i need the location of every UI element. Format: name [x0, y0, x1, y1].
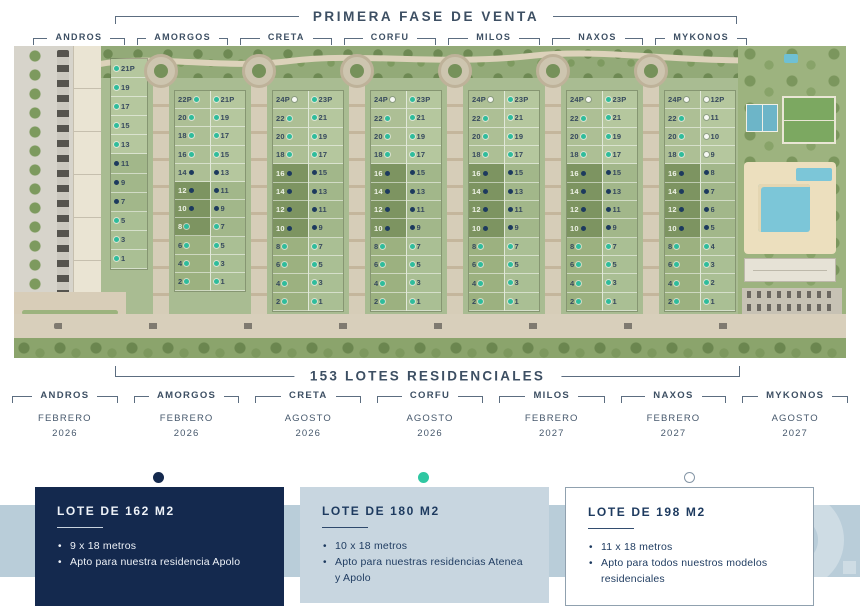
lot-strip-3-24P[interactable]: 24P: [273, 91, 308, 109]
lot-strip-7-11[interactable]: 11: [701, 109, 736, 127]
lot-strip-6-11[interactable]: 11: [603, 201, 638, 219]
lot-type-dot-icon: [214, 224, 219, 229]
lot-strip-4-8[interactable]: 8: [371, 238, 406, 256]
lot-number: 1: [121, 254, 125, 263]
lot-card-198: LOTE DE 198 M2 11 x 18 metros Apto para …: [565, 487, 814, 606]
lot-type-dot-icon: [214, 261, 219, 266]
lot-strip-7-22[interactable]: 22: [665, 109, 700, 127]
lot-number: 22: [374, 114, 383, 123]
lot-number: 1: [221, 277, 225, 286]
lot-strip-7-4[interactable]: 4: [665, 274, 700, 292]
lot-strip-6-20[interactable]: 20: [567, 128, 602, 146]
lot-strip-3-12[interactable]: 12: [273, 201, 308, 219]
lot-strip-4-12[interactable]: 12: [371, 201, 406, 219]
lot-strip-5-13[interactable]: 13: [505, 183, 540, 201]
lot-strip-7-20[interactable]: 20: [665, 128, 700, 146]
lot-number: 4: [374, 279, 378, 288]
lot-number: 22: [668, 114, 677, 123]
lot-strip-5-6[interactable]: 6: [469, 256, 504, 274]
lot-card-162: LOTE DE 162 M2 9 x 18 metros Apto para n…: [35, 487, 284, 606]
lot-number: 7: [121, 197, 125, 206]
lot-strip-6-7[interactable]: 7: [603, 238, 638, 256]
strip-6: 24P22201816141210864223P2119171513119753…: [566, 90, 638, 312]
lot-type-dot-icon: [282, 281, 287, 286]
strip-3: 24P22201816141210864223P2119171513119753…: [272, 90, 344, 312]
lot-strip-6-8[interactable]: 8: [567, 238, 602, 256]
lot-strip-5-19[interactable]: 19: [505, 128, 540, 146]
lot-strip-3-21[interactable]: 21: [309, 109, 344, 127]
clubhouse: [744, 258, 836, 282]
lot-strip-5-20[interactable]: 20: [469, 128, 504, 146]
lot-type-dot-icon: [312, 225, 317, 230]
lot-strip-5-5[interactable]: 5: [505, 256, 540, 274]
phase-bracket: CRETA: [255, 396, 361, 403]
lot-strip-3-16[interactable]: 16: [273, 164, 308, 182]
lot-column: 24P222018161412108642: [371, 91, 406, 311]
lot-strip-6-2[interactable]: 2: [567, 293, 602, 311]
lot-number: 4: [668, 279, 672, 288]
lot-number: 21: [515, 113, 524, 122]
lot-strip-4-22[interactable]: 22: [371, 109, 406, 127]
lot-strip-1-3[interactable]: 3: [111, 231, 147, 250]
lot-number: 22: [570, 114, 579, 123]
lot-type-dot-icon: [679, 171, 684, 176]
lot-strip-2-7[interactable]: 7: [211, 218, 246, 236]
lot-strip-6-16[interactable]: 16: [567, 164, 602, 182]
lot-strip-7-10[interactable]: 10: [701, 128, 736, 146]
street: [246, 46, 272, 358]
lot-strip-7-5[interactable]: 5: [701, 219, 736, 237]
lot-strip-2-11[interactable]: 11: [211, 182, 246, 200]
lot-strip-5-8[interactable]: 8: [469, 238, 504, 256]
lot-strip-1-17[interactable]: 17: [111, 97, 147, 116]
lot-strip-4-3[interactable]: 3: [407, 274, 442, 292]
phase-year: 2026: [255, 427, 361, 442]
lot-strip-5-24P[interactable]: 24P: [469, 91, 504, 109]
lot-number: 19: [613, 132, 622, 141]
lot-strip-6-4[interactable]: 4: [567, 274, 602, 292]
strip-7: 24P22201816141210864212P1110987654321: [664, 90, 736, 312]
lot-strip-4-14[interactable]: 14: [371, 183, 406, 201]
lot-type-dot-icon: [114, 66, 119, 71]
lot-strip-6-19[interactable]: 19: [603, 128, 638, 146]
lot-type-dot-icon: [214, 115, 219, 120]
lot-type-dot-icon: [287, 207, 292, 212]
lot-strip-2-3[interactable]: 3: [211, 255, 246, 273]
block-bracket-andros: ANDROS: [33, 38, 125, 45]
lot-type-dot-icon: [674, 244, 679, 249]
phase-name: MILOS: [525, 390, 578, 401]
lot-strip-6-1[interactable]: 1: [603, 293, 638, 311]
lot-type-dot-icon: [282, 244, 287, 249]
lot-card-title: LOTE DE 198 M2: [588, 505, 793, 519]
lot-strip-4-10[interactable]: 10: [371, 219, 406, 237]
lot-type-dot-icon: [581, 226, 586, 231]
lot-strip-2-22P[interactable]: 22P: [175, 91, 210, 109]
lot-strip-6-13[interactable]: 13: [603, 183, 638, 201]
lot-number: 21P: [121, 64, 135, 73]
lot-number: 1: [515, 297, 519, 306]
lot-type-dot-icon: [576, 262, 581, 267]
lot-strip-2-21P[interactable]: 21P: [211, 91, 246, 109]
lot-number: 14: [668, 187, 677, 196]
lot-number: 11: [711, 113, 719, 122]
masterplan-page: PRIMERA FASE DE VENTA ANDROS AMORGOS CRE…: [0, 0, 860, 615]
lot-strip-3-7[interactable]: 7: [309, 238, 344, 256]
lot-number: 1: [319, 297, 323, 306]
lot-strip-2-14[interactable]: 14: [175, 164, 210, 182]
lot-strip-4-17[interactable]: 17: [407, 146, 442, 164]
lot-strip-5-2[interactable]: 2: [469, 293, 504, 311]
lot-strip-7-14[interactable]: 14: [665, 183, 700, 201]
lot-strip-5-16[interactable]: 16: [469, 164, 504, 182]
lot-number: 11: [613, 205, 621, 214]
lot-card-bullets: 11 x 18 metros Apto para todos nuestros …: [588, 540, 793, 587]
lot-type-dot-icon: [214, 133, 219, 138]
lot-strip-7-12[interactable]: 12: [665, 201, 700, 219]
lot-number: 17: [319, 150, 328, 159]
lot-strip-4-5[interactable]: 5: [407, 256, 442, 274]
lot-strip-4-4[interactable]: 4: [371, 274, 406, 292]
lot-strip-7-2[interactable]: 2: [665, 293, 700, 311]
lot-strip-6-9[interactable]: 9: [603, 219, 638, 237]
lot-number: 20: [472, 132, 481, 141]
block-label: MYKONOS: [665, 32, 737, 42]
lot-type-dot-icon: [606, 115, 611, 120]
lot-number: 10: [570, 224, 579, 233]
lot-type-dot-icon: [114, 180, 119, 185]
lot-strip-1-15[interactable]: 15: [111, 116, 147, 135]
lot-type-dot-icon: [704, 134, 709, 139]
strip-2: 22P201816141210864221P191715131197531: [174, 90, 246, 292]
lot-strip-3-1[interactable]: 1: [309, 293, 344, 311]
lot-strip-3-13[interactable]: 13: [309, 183, 344, 201]
lot-strip-4-15[interactable]: 15: [407, 164, 442, 182]
lot-number: 21P: [221, 95, 235, 104]
lot-strip-3-17[interactable]: 17: [309, 146, 344, 164]
lot-strip-1-13[interactable]: 13: [111, 135, 147, 154]
lot-type-dot-icon: [287, 134, 292, 139]
lot-strip-3-6[interactable]: 6: [273, 256, 308, 274]
phase-name: MYKONOS: [758, 390, 832, 401]
lot-column: 24P222018161412108642: [665, 91, 700, 311]
lot-number: 6: [374, 260, 378, 269]
lot-strip-1-1[interactable]: 1: [111, 250, 147, 269]
lot-number: 8: [570, 242, 574, 251]
lot-strip-2-13[interactable]: 13: [211, 164, 246, 182]
lot-strip-4-19[interactable]: 19: [407, 128, 442, 146]
lot-strip-2-4[interactable]: 4: [175, 255, 210, 273]
lot-number: 13: [515, 187, 524, 196]
phase-month: AGOSTO: [255, 412, 361, 427]
lot-strip-6-17[interactable]: 17: [603, 146, 638, 164]
lot-strip-7-18[interactable]: 18: [665, 146, 700, 164]
lot-strip-6-23P[interactable]: 23P: [603, 91, 638, 109]
lot-strip-2-18[interactable]: 18: [175, 127, 210, 145]
lot-strip-2-19[interactable]: 19: [211, 109, 246, 127]
lot-type-dot-icon: [312, 189, 317, 194]
lot-type-dot-icon: [581, 152, 586, 157]
lot-strip-7-16[interactable]: 16: [665, 164, 700, 182]
lot-strip-2-1[interactable]: 1: [211, 273, 246, 291]
lot-number: 24P: [472, 95, 486, 104]
lot-number: 20: [570, 132, 579, 141]
lot-strip-3-11[interactable]: 11: [309, 201, 344, 219]
lot-strip-4-16[interactable]: 16: [371, 164, 406, 182]
lot-strip-1-9[interactable]: 9: [111, 174, 147, 193]
lot-type-dot-icon: [114, 123, 119, 128]
lot-strip-4-1[interactable]: 1: [407, 293, 442, 311]
lot-type-dot-icon: [189, 188, 194, 193]
lot-strip-3-10[interactable]: 10: [273, 219, 308, 237]
lot-strip-3-8[interactable]: 8: [273, 238, 308, 256]
lot-strip-3-18[interactable]: 18: [273, 146, 308, 164]
lot-strip-4-9[interactable]: 9: [407, 219, 442, 237]
lot-number: 12P: [711, 95, 725, 104]
lot-type-dot-icon: [508, 280, 513, 285]
roundabout-icon: [144, 54, 178, 88]
lot-type-dot-icon: [508, 225, 513, 230]
lot-strip-2-16[interactable]: 16: [175, 146, 210, 164]
lot-number: 12: [668, 205, 677, 214]
lot-strip-3-22[interactable]: 22: [273, 109, 308, 127]
lot-strip-5-11[interactable]: 11: [505, 201, 540, 219]
lot-type-dot-icon: [704, 152, 709, 157]
lot-number: 22: [472, 114, 481, 123]
lot-strip-5-23P[interactable]: 23P: [505, 91, 540, 109]
lot-strip-6-22[interactable]: 22: [567, 109, 602, 127]
lot-type-dot-icon: [679, 189, 684, 194]
lot-strip-5-18[interactable]: 18: [469, 146, 504, 164]
lot-strip-4-6[interactable]: 6: [371, 256, 406, 274]
lot-strip-7-6[interactable]: 6: [701, 201, 736, 219]
lot-strip-6-5[interactable]: 5: [603, 256, 638, 274]
lot-strip-5-12[interactable]: 12: [469, 201, 504, 219]
lot-strip-6-15[interactable]: 15: [603, 164, 638, 182]
lot-type-dot-icon: [508, 244, 513, 249]
lot-strip-7-8[interactable]: 8: [665, 238, 700, 256]
lot-strip-2-8[interactable]: 8: [175, 218, 210, 236]
lot-strip-7-3[interactable]: 3: [701, 256, 736, 274]
lot-type-dot-icon: [189, 115, 194, 120]
lot-strip-3-4[interactable]: 4: [273, 274, 308, 292]
lot-strip-5-7[interactable]: 7: [505, 238, 540, 256]
phase-amorgos: AMORGOS FEBRERO2026: [134, 396, 240, 441]
lot-column: 24P222018161412108642: [469, 91, 504, 311]
lot-strip-5-14[interactable]: 14: [469, 183, 504, 201]
lot-strip-2-20[interactable]: 20: [175, 109, 210, 127]
lot-strip-2-12[interactable]: 12: [175, 182, 210, 200]
lot-type-dot-icon: [214, 279, 219, 284]
lot-number: 6: [711, 205, 715, 214]
lot-number: 8: [668, 242, 672, 251]
lot-type-dot-icon: [581, 207, 586, 212]
lot-strip-3-14[interactable]: 14: [273, 183, 308, 201]
lot-strip-1-11[interactable]: 11: [111, 154, 147, 173]
street: [540, 46, 566, 358]
lot-type-dot-icon: [606, 152, 611, 157]
lot-type-180-dot-icon: [418, 472, 429, 483]
lot-type-dot-icon: [606, 97, 611, 102]
lot-strip-1-7[interactable]: 7: [111, 193, 147, 212]
lot-strip-3-20[interactable]: 20: [273, 128, 308, 146]
lot-type-dot-icon: [606, 134, 611, 139]
lot-number: 3: [711, 260, 715, 269]
lot-strip-1-21P[interactable]: 21P: [111, 59, 147, 78]
lot-type-dot-icon: [114, 85, 119, 90]
lot-strip-5-15[interactable]: 15: [505, 164, 540, 182]
lot-strip-4-23P[interactable]: 23P: [407, 91, 442, 109]
lot-strip-2-5[interactable]: 5: [211, 237, 246, 255]
lot-number: 10: [668, 224, 677, 233]
lot-type-dot-icon: [385, 226, 390, 231]
lot-strip-7-10[interactable]: 10: [665, 219, 700, 237]
lot-strip-6-10[interactable]: 10: [567, 219, 602, 237]
lot-number: 7: [613, 242, 617, 251]
lot-strip-4-24P[interactable]: 24P: [371, 91, 406, 109]
lot-strip-6-12[interactable]: 12: [567, 201, 602, 219]
lot-column: 12P1110987654321: [700, 91, 736, 311]
lot-strip-7-1[interactable]: 1: [701, 293, 736, 311]
lot-number: 18: [374, 150, 383, 159]
lot-strip-4-13[interactable]: 13: [407, 183, 442, 201]
lot-strip-5-3[interactable]: 3: [505, 274, 540, 292]
lot-strip-4-2[interactable]: 2: [371, 293, 406, 311]
lot-strip-7-8[interactable]: 8: [701, 164, 736, 182]
main-road: [14, 314, 846, 338]
roundabout-icon: [536, 54, 570, 88]
lot-strip-4-11[interactable]: 11: [407, 201, 442, 219]
lot-strip-5-10[interactable]: 10: [469, 219, 504, 237]
lot-number: 14: [472, 187, 481, 196]
lot-type-dot-icon: [606, 299, 611, 304]
lot-type-dot-icon: [114, 142, 119, 147]
lot-number: 4: [472, 279, 476, 288]
lot-strip-5-22[interactable]: 22: [469, 109, 504, 127]
lot-column: 23P21191715131197531: [602, 91, 638, 311]
phase-naxos: NAXOS FEBRERO2027: [621, 396, 727, 441]
lot-type-dot-icon: [581, 116, 586, 121]
lot-number: 11: [221, 186, 229, 195]
lot-number: 16: [276, 169, 285, 178]
lot-number: 23P: [319, 95, 333, 104]
lot-strip-4-20[interactable]: 20: [371, 128, 406, 146]
lot-type-dot-icon: [704, 115, 709, 120]
lot-number: 1: [417, 297, 421, 306]
lot-strip-6-6[interactable]: 6: [567, 256, 602, 274]
roundabout-icon: [438, 54, 472, 88]
lot-strip-7-6[interactable]: 6: [665, 256, 700, 274]
lot-strip-7-2[interactable]: 2: [701, 274, 736, 292]
lot-type-dot-icon: [385, 189, 390, 194]
phase-year: 2026: [12, 427, 118, 442]
lot-type-dot-icon: [410, 207, 415, 212]
lot-type-dot-icon: [410, 244, 415, 249]
lot-strip-7-4[interactable]: 4: [701, 238, 736, 256]
lot-strip-6-3[interactable]: 3: [603, 274, 638, 292]
lot-number: 6: [472, 260, 476, 269]
lot-strip-2-15[interactable]: 15: [211, 146, 246, 164]
lot-strip-5-1[interactable]: 1: [505, 293, 540, 311]
lot-strip-2-2[interactable]: 2: [175, 273, 210, 291]
lot-strip-2-9[interactable]: 9: [211, 200, 246, 218]
parking-area: [742, 288, 842, 314]
lot-strip-3-3[interactable]: 3: [309, 274, 344, 292]
lot-strip-6-18[interactable]: 18: [567, 146, 602, 164]
lot-strip-4-7[interactable]: 7: [407, 238, 442, 256]
lot-strip-5-21[interactable]: 21: [505, 109, 540, 127]
lot-number: 13: [319, 187, 328, 196]
lot-strip-7-24P[interactable]: 24P: [665, 91, 700, 109]
lot-strip-2-17[interactable]: 17: [211, 127, 246, 145]
lot-strip-3-2[interactable]: 2: [273, 293, 308, 311]
lot-number: 12: [570, 205, 579, 214]
tennis-courts: [782, 96, 836, 144]
lot-number: 11: [319, 205, 327, 214]
lot-strip-7-12P[interactable]: 12P: [701, 91, 736, 109]
lot-type-dot-icon: [287, 171, 292, 176]
lot-type-dot-icon: [488, 97, 493, 102]
lot-strip-2-6[interactable]: 6: [175, 236, 210, 254]
lot-type-dot-icon: [684, 97, 689, 102]
lot-type-dot-icon: [674, 299, 679, 304]
lot-strip-3-9[interactable]: 9: [309, 219, 344, 237]
phase-year: 2027: [621, 427, 727, 442]
lot-number: 11: [515, 205, 523, 214]
lot-strip-5-4[interactable]: 4: [469, 274, 504, 292]
lot-number: 7: [221, 222, 225, 231]
lot-strip-4-21[interactable]: 21: [407, 109, 442, 127]
lot-strip-1-19[interactable]: 19: [111, 78, 147, 97]
lot-number: 4: [570, 279, 574, 288]
lot-number: 7: [711, 187, 715, 196]
lot-strip-2-10[interactable]: 10: [175, 200, 210, 218]
lot-strip-6-24P[interactable]: 24P: [567, 91, 602, 109]
lot-strip-6-14[interactable]: 14: [567, 183, 602, 201]
lot-strip-3-15[interactable]: 15: [309, 164, 344, 182]
lot-strip-5-9[interactable]: 9: [505, 219, 540, 237]
lot-strip-3-5[interactable]: 5: [309, 256, 344, 274]
divider: [322, 527, 368, 528]
lot-type-dot-icon: [312, 134, 317, 139]
lot-strip-6-21[interactable]: 21: [603, 109, 638, 127]
lot-type-dot-icon: [385, 152, 390, 157]
map-strips: 21P19171513119753122P201816141210864221P…: [110, 46, 738, 358]
lot-number: 15: [417, 168, 426, 177]
lot-number: 14: [276, 187, 285, 196]
lot-strip-7-9[interactable]: 9: [701, 146, 736, 164]
roundabout-icon: [634, 54, 668, 88]
brand-watermark-dot: [843, 561, 856, 574]
lot-strip-7-7[interactable]: 7: [701, 183, 736, 201]
lot-type-dot-icon: [287, 116, 292, 121]
lot-type-dot-icon: [674, 281, 679, 286]
lot-type-dot-icon: [704, 280, 709, 285]
lot-strip-3-19[interactable]: 19: [309, 128, 344, 146]
lot-type-198-dot-icon: [684, 472, 695, 483]
lot-strip-4-18[interactable]: 18: [371, 146, 406, 164]
phase-creta: CRETA AGOSTO2026: [255, 396, 361, 441]
lot-strip-3-23P[interactable]: 23P: [309, 91, 344, 109]
lot-column: 23P21191715131197531: [504, 91, 540, 311]
lot-strip-5-17[interactable]: 17: [505, 146, 540, 164]
lot-strip-1-5[interactable]: 5: [111, 212, 147, 231]
lot-number: 3: [221, 259, 225, 268]
lot-type-dot-icon: [410, 170, 415, 175]
lot-type-dot-icon: [214, 188, 219, 193]
lot-number: 8: [276, 242, 280, 251]
lot-number: 15: [613, 168, 622, 177]
